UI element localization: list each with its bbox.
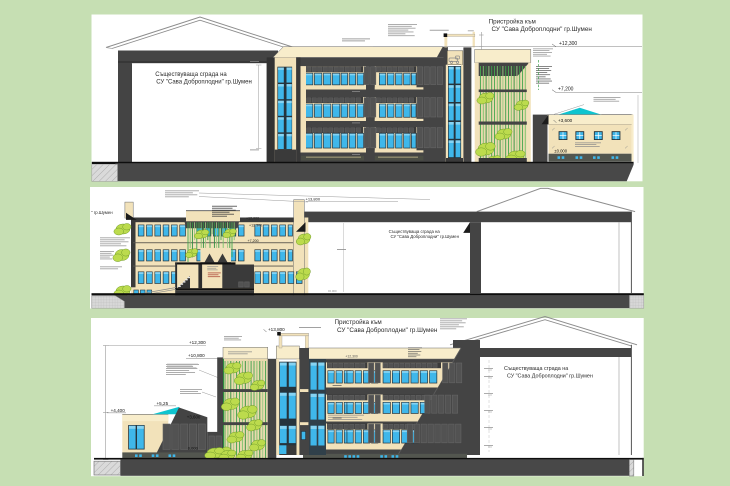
svg-text:+12,300: +12,300 bbox=[345, 354, 357, 358]
svg-text:+3,600: +3,600 bbox=[558, 118, 573, 123]
svg-text:+3,600: +3,600 bbox=[187, 415, 201, 420]
svg-text:Съществуваща сграда на: Съществуваща сграда на bbox=[155, 72, 227, 78]
svg-text:+12,300: +12,300 bbox=[249, 223, 262, 227]
svg-text:+13,800: +13,800 bbox=[268, 327, 285, 332]
svg-text:+4,400: +4,400 bbox=[111, 408, 126, 413]
svg-text:+12,300: +12,300 bbox=[189, 340, 206, 345]
svg-text:0,000: 0,000 bbox=[188, 445, 199, 450]
svg-text:Съществуваща сграда на: Съществуваща сграда на bbox=[504, 366, 568, 372]
svg-text:СУ "Сава Доброплодни" гр.Шумен: СУ "Сава Доброплодни" гр.Шумен bbox=[492, 25, 593, 33]
svg-text:+12,900: +12,900 bbox=[246, 216, 259, 220]
svg-text:+7,200: +7,200 bbox=[558, 87, 574, 93]
svg-text:+5,25: +5,25 bbox=[157, 401, 169, 406]
svg-text:" гр.Шумен: " гр.Шумен bbox=[91, 210, 113, 215]
svg-text:+10,800: +10,800 bbox=[188, 353, 205, 358]
svg-text:СУ "Сава Доброплодни" гр.Шумен: СУ "Сава Доброплодни" гр.Шумен bbox=[507, 373, 593, 379]
svg-text:±0.000: ±0.000 bbox=[328, 289, 337, 293]
svg-text:±0.000: ±0.000 bbox=[554, 149, 567, 154]
svg-text:+12,300: +12,300 bbox=[559, 41, 577, 47]
svg-text:+13,800: +13,800 bbox=[306, 197, 321, 202]
svg-text:+7,200: +7,200 bbox=[248, 239, 259, 243]
svg-text:СУ "Сава Доброплодни" гр.Шумен: СУ "Сава Доброплодни" гр.Шумен bbox=[337, 326, 438, 334]
svg-text:Пристройка към: Пристройка към bbox=[335, 318, 382, 326]
svg-text:СУ "Сава Доброплодни" гр.Шумен: СУ "Сава Доброплодни" гр.Шумен bbox=[156, 79, 252, 85]
svg-text:СУ "Сава Доброплодни" гр.Шумен: СУ "Сава Доброплодни" гр.Шумен bbox=[391, 234, 460, 239]
svg-text:Пристройка към: Пристройка към bbox=[489, 17, 536, 25]
